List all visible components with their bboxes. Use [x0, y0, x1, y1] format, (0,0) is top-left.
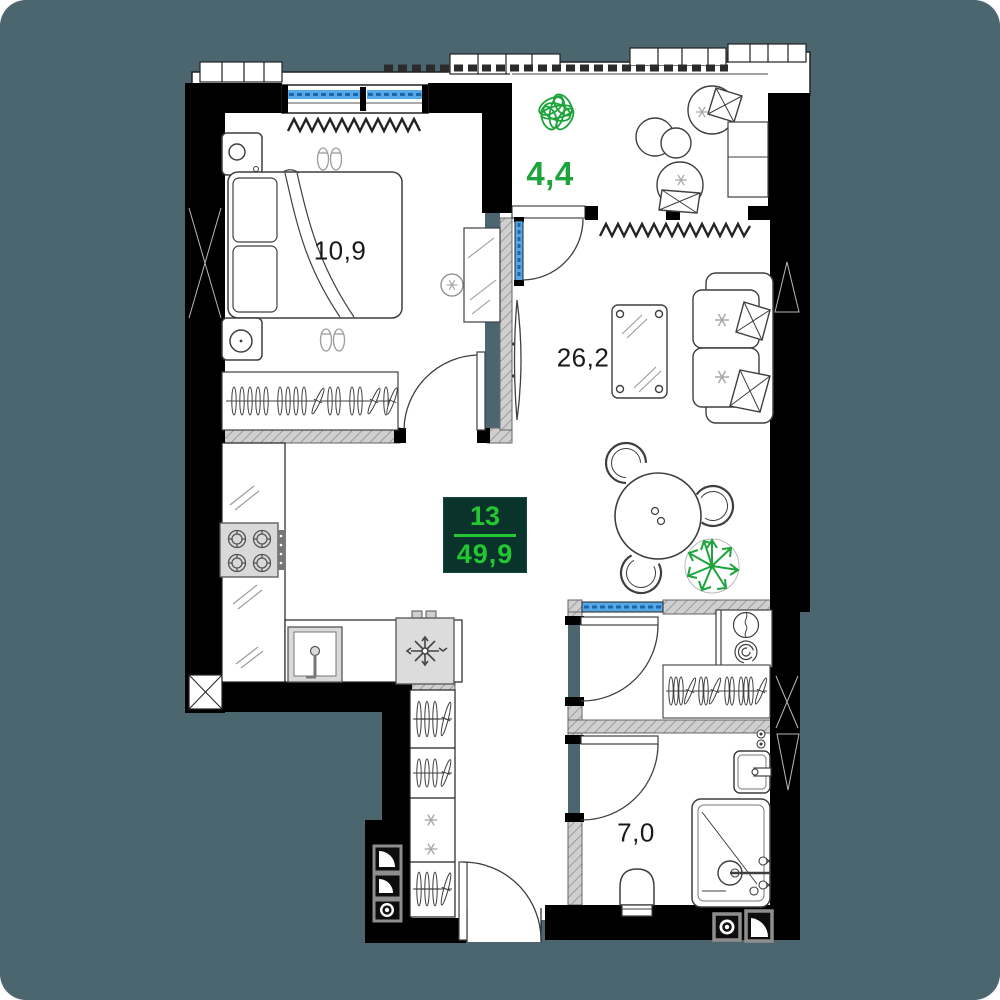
wash-basin-icon: [734, 751, 771, 793]
appliance-cabinet: [716, 610, 772, 667]
bedroom-window-icon: [282, 85, 428, 113]
nightstand-icon: [222, 318, 262, 360]
unit-number: 13: [470, 502, 500, 530]
wardrobe-rail-icon: [222, 372, 401, 430]
unit-total-area: 49,9: [457, 540, 514, 568]
badge-divider: [454, 534, 516, 537]
vent-fan-icon: [746, 911, 772, 941]
fridge-icon: [396, 611, 454, 684]
side-table-icon: [661, 128, 691, 158]
vent-duct-icon: [714, 914, 740, 940]
bedroom-area-label: 10,9: [314, 236, 367, 267]
coffee-table-icon: [612, 305, 667, 398]
balcony-area-label: 4,4: [526, 155, 573, 193]
shower-icon: [692, 799, 771, 907]
unit-badge: 13 49,9: [443, 497, 527, 573]
stove-icon: [220, 523, 284, 577]
vent-duct-icon: [374, 900, 401, 921]
kitchen-sink-icon: [288, 627, 342, 682]
bench-icon: [728, 122, 768, 197]
bathroom-area-label: 7,0: [617, 818, 655, 849]
cushion-icon: [659, 190, 700, 213]
nightstand-lamp-icon: [222, 133, 262, 175]
clothes-rail-icon: [663, 665, 770, 718]
mirror-icon: [464, 228, 500, 322]
corner-shaft-icon: [189, 675, 222, 709]
vent-fan-icon: [374, 846, 401, 898]
pillow-icon: [233, 246, 277, 312]
ceiling-light-icon: [441, 274, 463, 296]
toilet-icon: [620, 869, 654, 916]
living-area-label: 26,2: [557, 343, 610, 374]
floor-plan: 10,9 4,4 26,2 7,0 13 49,9: [0, 0, 1000, 1000]
closet-window-icon: [582, 602, 663, 612]
sofa-icon: [693, 273, 773, 423]
pillow-icon: [233, 178, 277, 242]
